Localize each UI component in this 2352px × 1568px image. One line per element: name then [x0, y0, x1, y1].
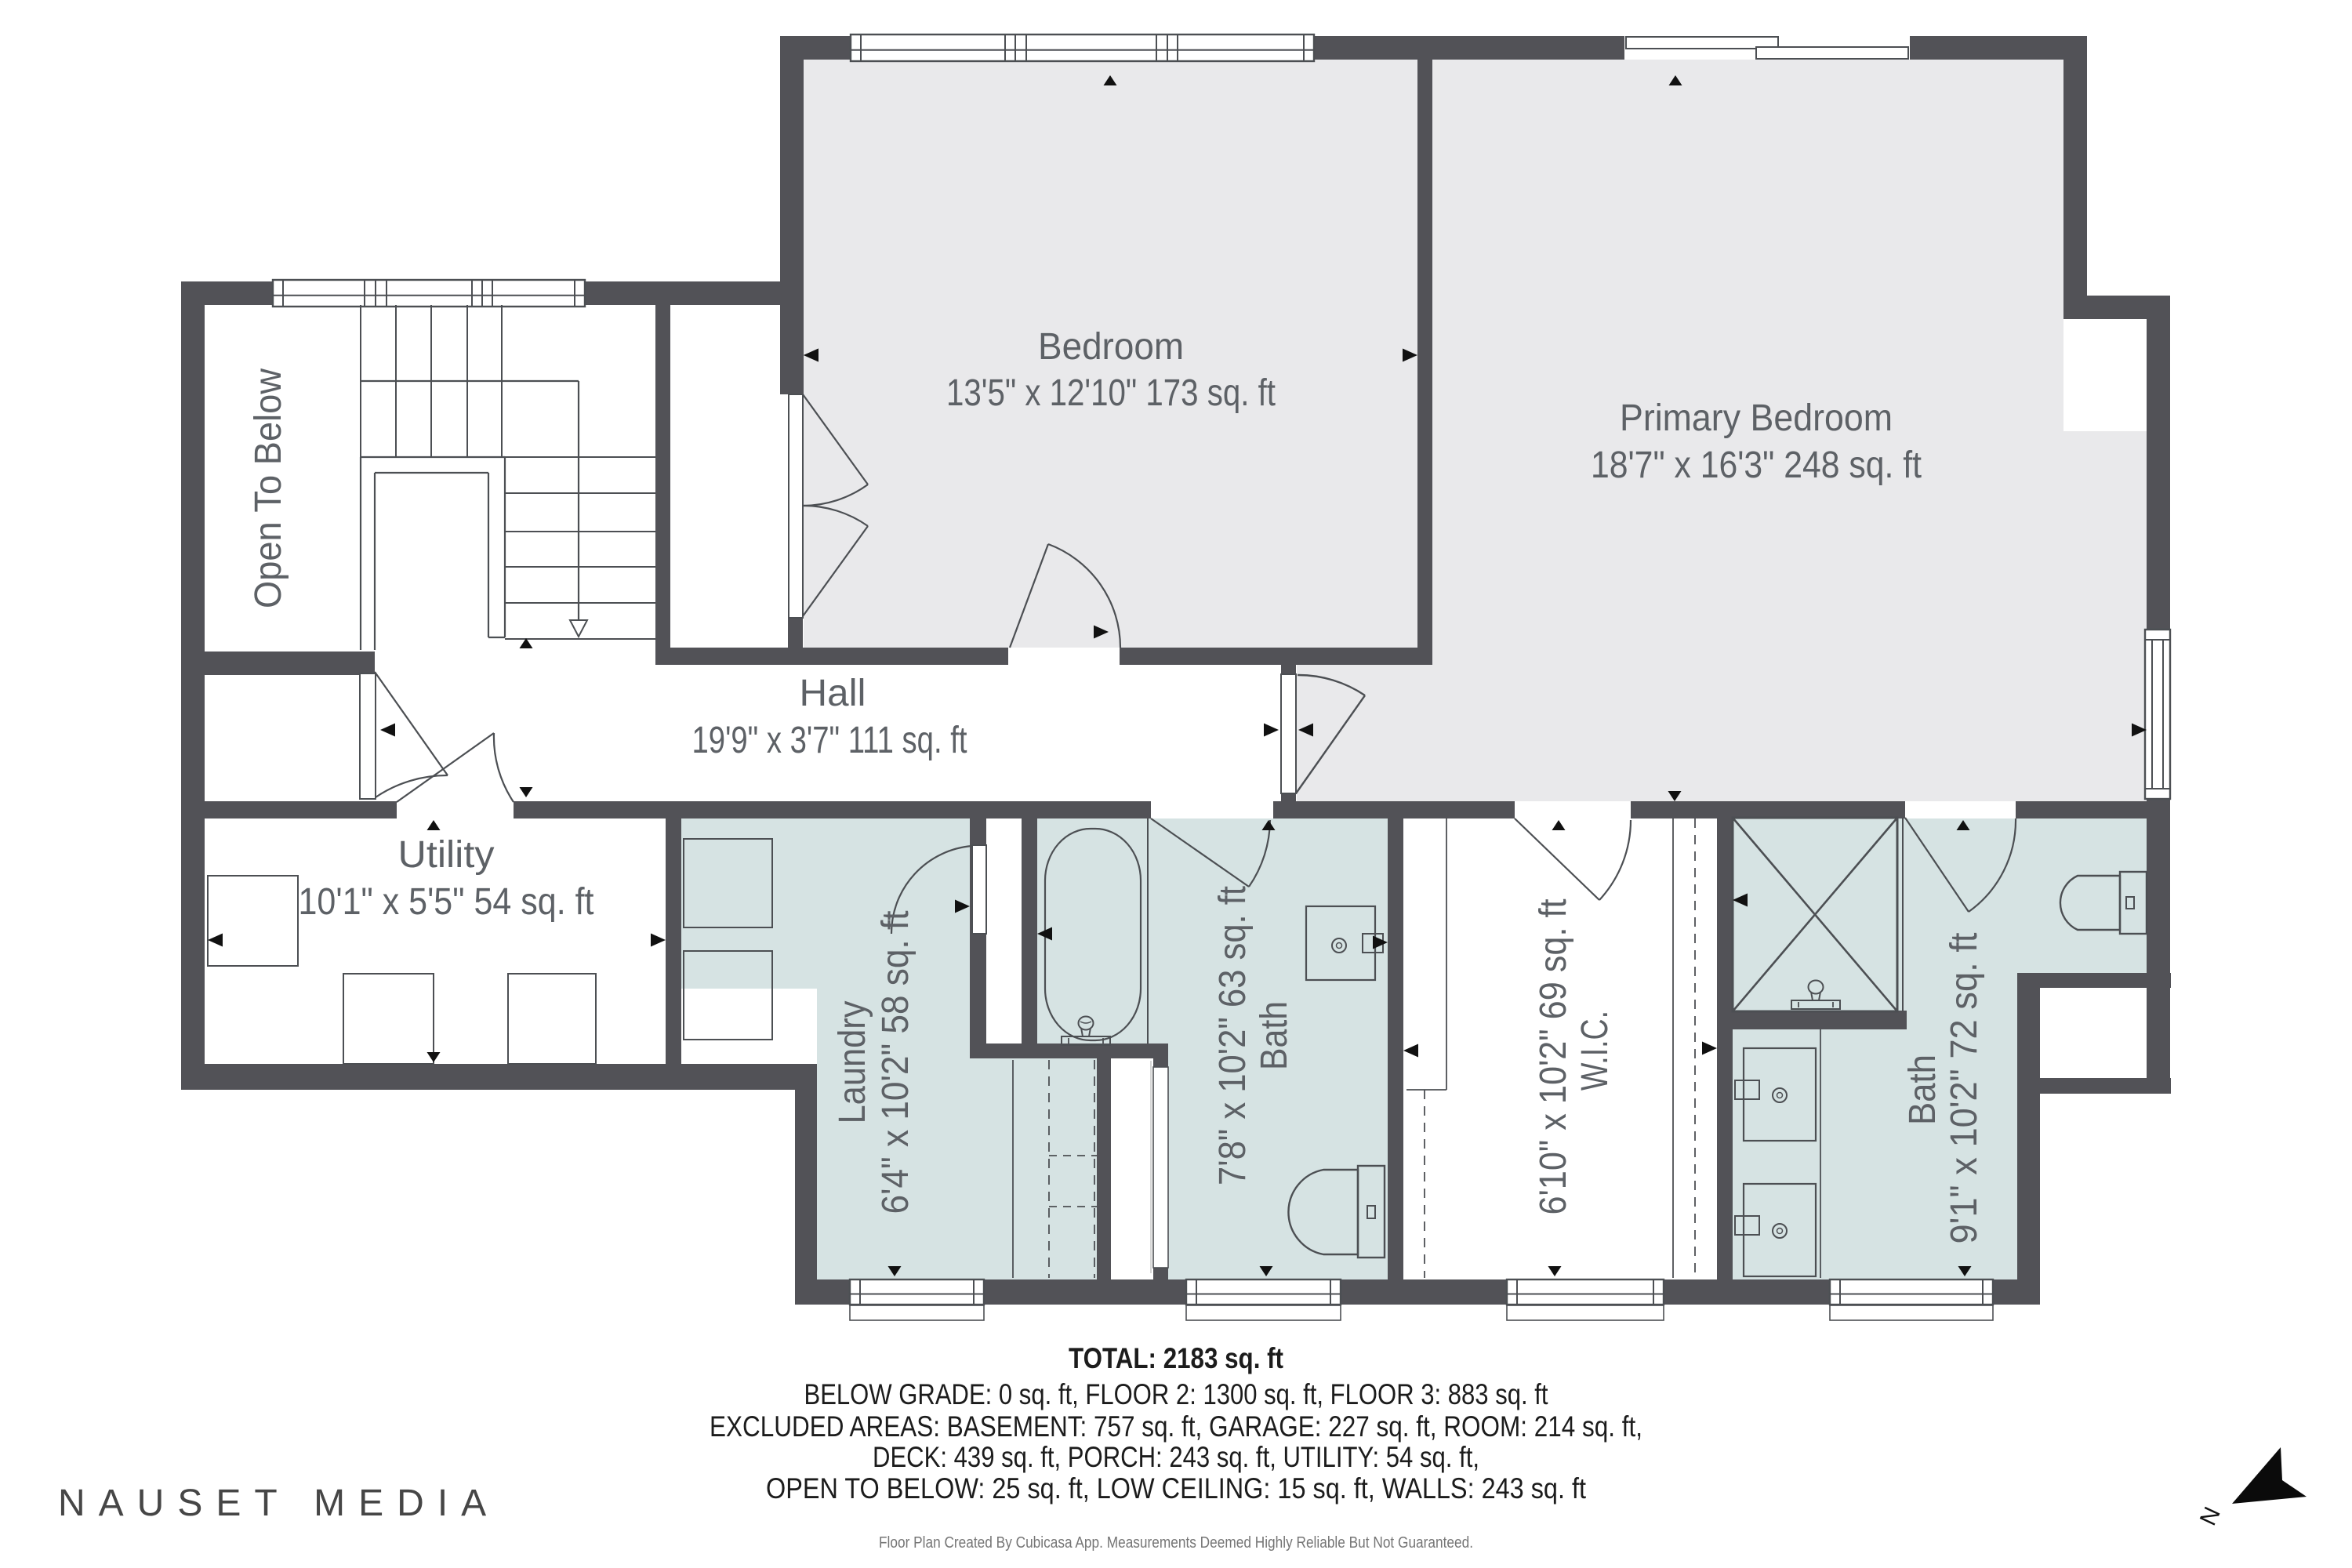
svg-text:TOTAL: 2183 sq. ft: TOTAL: 2183 sq. ft — [1069, 1342, 1283, 1374]
svg-text:Open To Below: Open To Below — [248, 368, 289, 608]
svg-text:13'5" x 12'10" 173 sq. ft: 13'5" x 12'10" 173 sq. ft — [946, 372, 1276, 414]
svg-text:Hall: Hall — [800, 673, 866, 714]
svg-text:7'8" x 10'2" 63 sq. ft: 7'8" x 10'2" 63 sq. ft — [1212, 886, 1254, 1185]
svg-text:NAUSET MEDIA: NAUSET MEDIA — [58, 1483, 499, 1524]
svg-text:EXCLUDED AREAS: BASEMENT: 757: EXCLUDED AREAS: BASEMENT: 757 sq. ft, GA… — [710, 1410, 1642, 1443]
svg-text:18'7" x 16'3" 248 sq. ft: 18'7" x 16'3" 248 sq. ft — [1591, 445, 1922, 486]
svg-text:19'9" x 3'7" 111 sq. ft: 19'9" x 3'7" 111 sq. ft — [692, 720, 967, 761]
svg-text:9'1" x 10'2" 72 sq. ft: 9'1" x 10'2" 72 sq. ft — [1944, 933, 1985, 1244]
svg-text:Bath: Bath — [1254, 1001, 1295, 1070]
svg-text:Laundry: Laundry — [832, 1001, 873, 1124]
svg-text:Bedroom: Bedroom — [1038, 326, 1184, 368]
svg-text:BELOW GRADE: 0 sq. ft, FLOOR 2: BELOW GRADE: 0 sq. ft, FLOOR 2: 1300 sq.… — [804, 1378, 1549, 1410]
svg-text:W.I.C.: W.I.C. — [1574, 1011, 1616, 1091]
svg-text:6'4" x 10'2" 58 sq. ft: 6'4" x 10'2" 58 sq. ft — [875, 911, 916, 1214]
svg-text:DECK: 439 sq. ft, PORCH: 243 s: DECK: 439 sq. ft, PORCH: 243 sq. ft, UTI… — [873, 1441, 1479, 1473]
svg-text:Utility: Utility — [398, 834, 495, 876]
svg-text:Bath: Bath — [1902, 1054, 1944, 1125]
svg-text:Primary Bedroom: Primary Bedroom — [1620, 397, 1893, 439]
svg-text:10'1" x 5'5" 54 sq. ft: 10'1" x 5'5" 54 sq. ft — [299, 881, 594, 923]
svg-text:6'10" x 10'2" 69 sq. ft: 6'10" x 10'2" 69 sq. ft — [1533, 899, 1574, 1215]
svg-text:Floor Plan Created By Cubicasa: Floor Plan Created By Cubicasa App. Meas… — [879, 1534, 1473, 1552]
svg-text:OPEN TO BELOW: 25 sq. ft, LOW: OPEN TO BELOW: 25 sq. ft, LOW CEILING: 1… — [766, 1472, 1587, 1504]
